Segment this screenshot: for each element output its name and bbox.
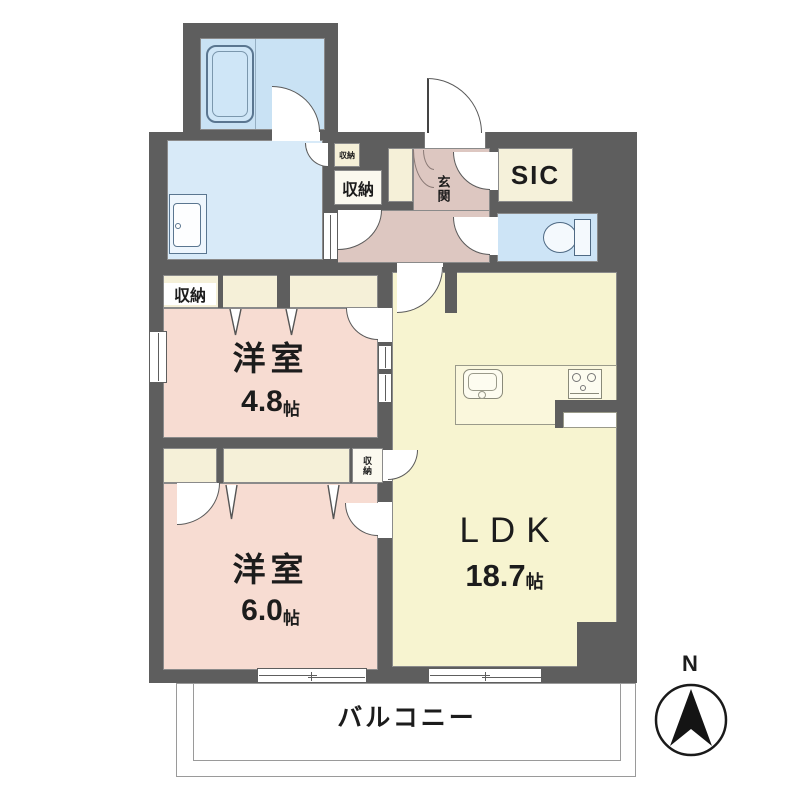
area-unit: 帖	[526, 568, 544, 594]
bedroom-large-label: 洋室	[163, 547, 378, 587]
bathtub	[206, 45, 254, 123]
ldk-side-closet-label: 収納	[353, 449, 382, 482]
area-unit: 帖	[283, 604, 300, 629]
washbasin	[169, 194, 207, 254]
window-line	[158, 333, 159, 381]
window-lock	[485, 672, 486, 681]
window-interior-a	[378, 345, 392, 370]
toilet-doorway	[490, 217, 498, 255]
kitchen-stove	[568, 369, 602, 399]
window-sash	[482, 677, 541, 678]
bathroom-doorway	[272, 131, 320, 141]
entrance-door-arc	[427, 78, 482, 133]
area-value: 6.0	[241, 594, 283, 628]
area-value: 18.7	[465, 558, 525, 594]
balcony-label: バルコニー	[193, 698, 621, 734]
sic-label: SIC	[498, 158, 573, 192]
ldk-room	[392, 272, 617, 667]
bedroom-small-area: 4.8帖	[163, 384, 378, 420]
bathtub-inner	[212, 51, 248, 117]
wall-ldk-notch	[577, 622, 637, 667]
area-unit: 帖	[283, 395, 300, 420]
closet-divider	[218, 275, 223, 308]
entrance-label: 玄関	[433, 158, 453, 220]
north-label: N	[653, 648, 727, 680]
hall-closet-small: 収納	[334, 143, 360, 167]
toilet-tank	[574, 219, 591, 256]
stove-line	[570, 393, 599, 394]
window-sash	[308, 677, 365, 678]
sic-doorway	[490, 152, 498, 190]
north-arrow-icon	[653, 682, 729, 758]
stove-burner	[572, 373, 581, 382]
hall-closet-small-label: 収納	[335, 144, 359, 166]
window-line	[385, 347, 386, 368]
bathroom-divider-line	[255, 39, 256, 129]
ldk-label: LDK	[392, 510, 617, 552]
kitchen-counter-return	[563, 412, 617, 428]
washbasin-drain	[175, 223, 181, 229]
entrance-doorway	[424, 132, 486, 148]
bedroom-small-label: 洋室	[163, 336, 378, 376]
folding-door-marker	[224, 484, 239, 521]
window-sash	[430, 675, 490, 676]
kitchen-faucet	[478, 391, 486, 399]
stove-burner	[580, 385, 586, 391]
window-balcony-bedroom	[257, 668, 367, 683]
bedroom-large-doorway	[378, 502, 392, 538]
wall-kitchen-stub	[555, 412, 563, 428]
window-balcony-ldk	[428, 668, 542, 683]
hall-closet-label: 収納	[335, 171, 381, 204]
bedroom-small-doorway	[378, 308, 392, 342]
window-interior-b	[378, 373, 392, 403]
ldk-side-closet: 収納	[352, 448, 383, 483]
kitchen-sink	[463, 369, 503, 399]
closet-divider	[277, 275, 290, 308]
toilet-bowl	[543, 222, 577, 253]
area-value: 4.8	[241, 385, 283, 419]
washroom-sliding-door	[323, 212, 338, 260]
floor-plan: 収納 収納 収納 収納	[0, 0, 797, 797]
ldk-area: 18.7帖	[392, 557, 617, 595]
shoe-cabinet	[388, 148, 413, 202]
stove-burner	[587, 373, 596, 382]
bedroom-closet-label-box: 収納	[164, 283, 216, 305]
folding-door-marker	[326, 484, 341, 521]
hall-closet: 収納	[334, 170, 382, 205]
window-sash	[259, 675, 317, 676]
bedroom-large-closet-left	[163, 448, 217, 483]
wall-door-fin	[445, 263, 457, 313]
window-line	[385, 375, 386, 401]
wall-kitchen-stub	[555, 400, 617, 412]
kitchen-sink-basin	[468, 373, 497, 391]
window-lock	[311, 672, 312, 681]
bedroom-large-area: 6.0帖	[163, 593, 378, 629]
sliding-door-line	[330, 215, 331, 259]
bedroom-large-closet-right	[223, 448, 350, 483]
